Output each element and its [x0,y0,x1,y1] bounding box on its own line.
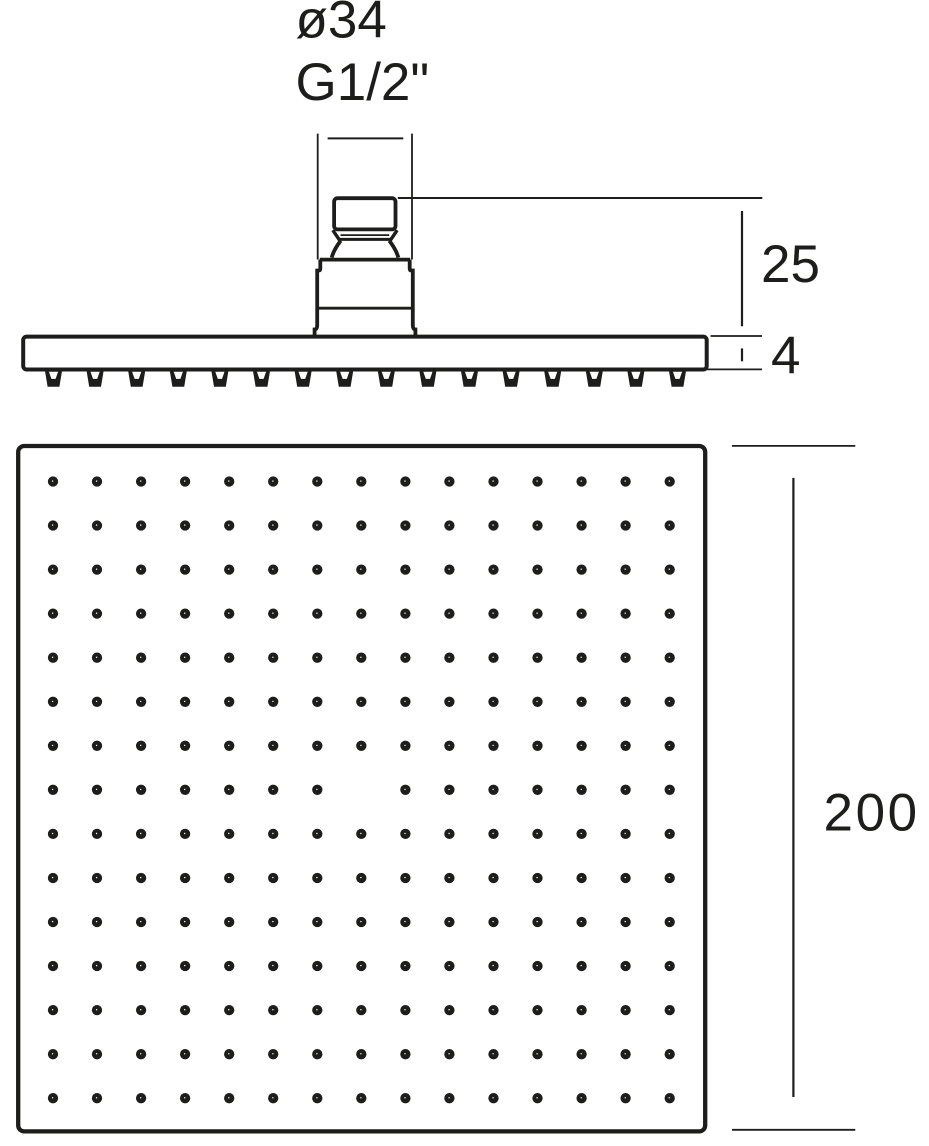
svg-text:G1/2": G1/2" [296,53,430,112]
svg-text:25: 25 [761,235,820,294]
svg-text:4: 4 [771,327,800,386]
svg-text:200: 200 [824,784,920,843]
svg-text:ø34: ø34 [296,0,387,50]
